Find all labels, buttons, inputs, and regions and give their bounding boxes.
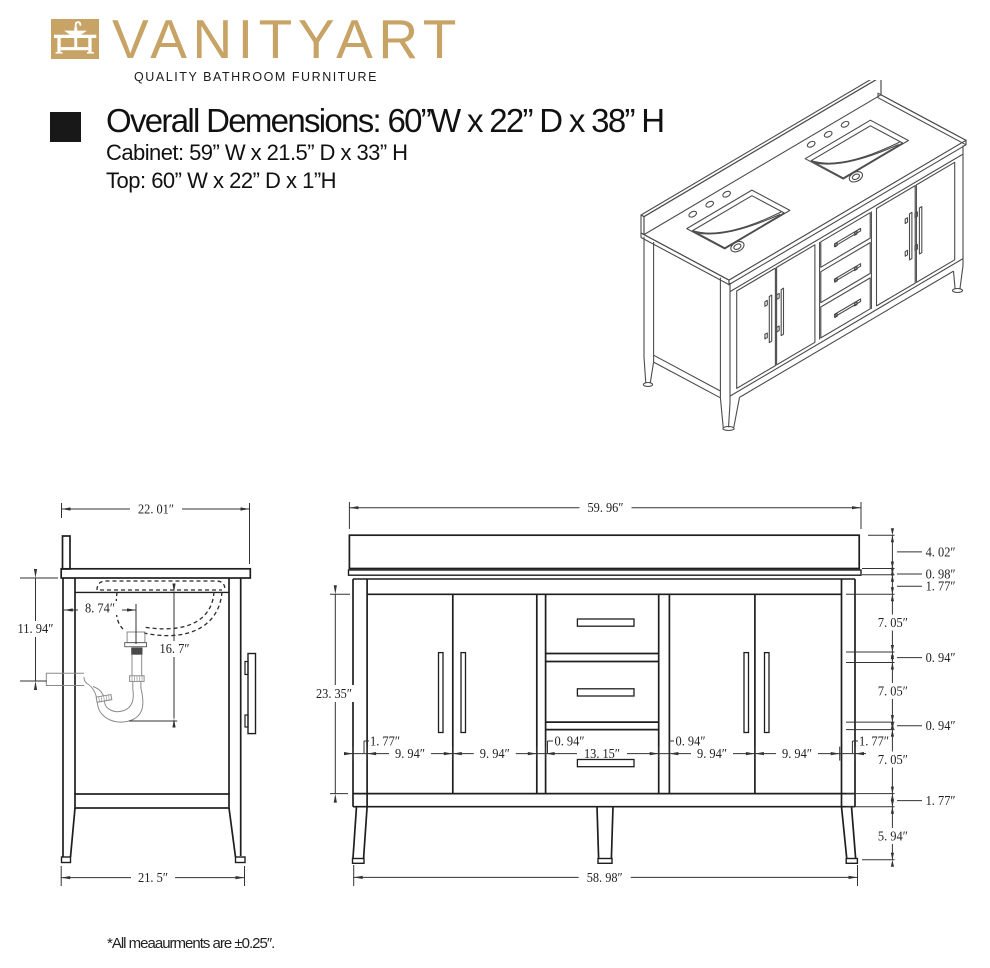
svg-text:1. 77″: 1. 77″ — [926, 579, 956, 594]
svg-text:0. 94″: 0. 94″ — [676, 734, 706, 749]
svg-text:1. 77″: 1. 77″ — [370, 734, 400, 749]
svg-text:8. 74″: 8. 74″ — [85, 601, 115, 616]
svg-text:0. 94″: 0. 94″ — [926, 650, 956, 665]
svg-text:9. 94″: 9. 94″ — [480, 746, 510, 761]
svg-text:13. 15″: 13. 15″ — [584, 746, 620, 761]
svg-text:22. 01″: 22. 01″ — [138, 502, 174, 517]
svg-text:0. 94″: 0. 94″ — [555, 734, 585, 749]
svg-text:1. 77″: 1. 77″ — [859, 734, 889, 749]
svg-text:9. 94″: 9. 94″ — [782, 746, 812, 761]
svg-text:7. 05″: 7. 05″ — [878, 684, 908, 699]
svg-text:4. 02″: 4. 02″ — [926, 544, 956, 559]
svg-text:11. 94″: 11. 94″ — [18, 621, 54, 636]
svg-text:1. 77″: 1. 77″ — [926, 793, 956, 808]
svg-text:16. 7″: 16. 7″ — [160, 641, 190, 656]
svg-text:7. 05″: 7. 05″ — [878, 615, 908, 630]
svg-text:7. 05″: 7. 05″ — [878, 752, 908, 767]
svg-text:21. 5″: 21. 5″ — [138, 870, 168, 885]
svg-text:59. 96″: 59. 96″ — [588, 500, 624, 515]
svg-text:58. 98″: 58. 98″ — [587, 870, 623, 885]
svg-text:0. 94″: 0. 94″ — [926, 718, 956, 733]
svg-text:5. 94″: 5. 94″ — [878, 829, 908, 844]
svg-text:23. 35″: 23. 35″ — [316, 686, 352, 701]
